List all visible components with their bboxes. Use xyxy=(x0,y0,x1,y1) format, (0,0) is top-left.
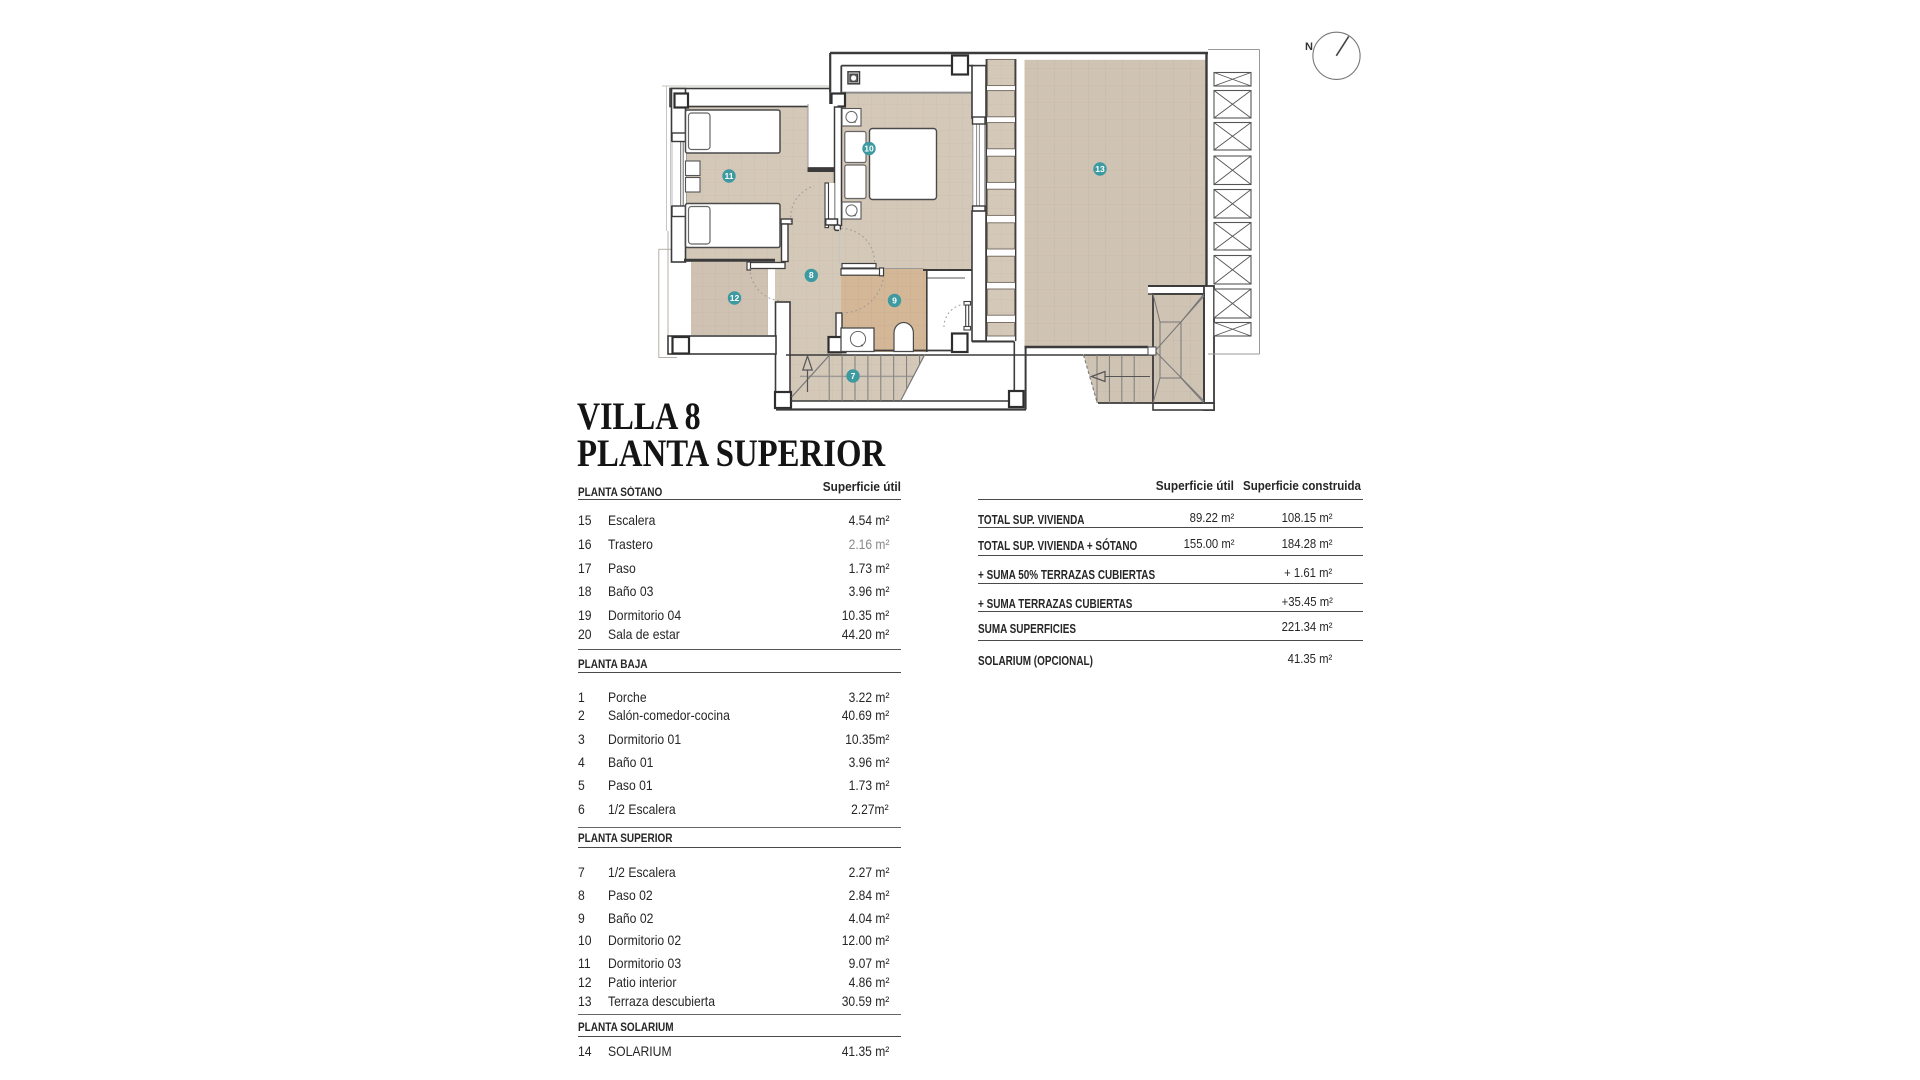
svg-text:10: 10 xyxy=(864,143,874,153)
svg-text:9: 9 xyxy=(892,295,897,305)
svg-text:11: 11 xyxy=(724,171,733,181)
svg-text:N: N xyxy=(1305,41,1313,53)
svg-text:8: 8 xyxy=(809,270,814,280)
svg-text:7: 7 xyxy=(851,371,856,381)
svg-text:12: 12 xyxy=(730,293,740,303)
svg-text:13: 13 xyxy=(1095,164,1105,174)
